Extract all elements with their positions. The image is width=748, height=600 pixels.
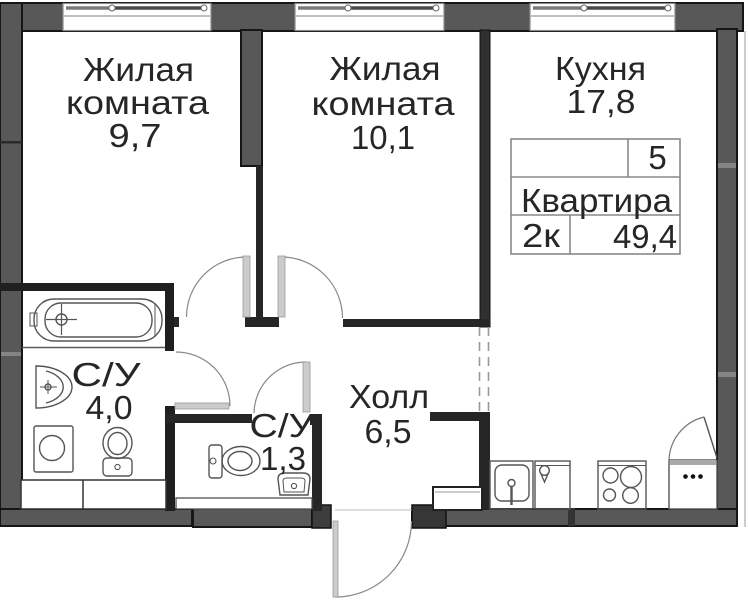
svg-text:Квартира: Квартира	[521, 182, 673, 219]
svg-text:Кухня: Кухня	[555, 50, 646, 87]
svg-text:17,8: 17,8	[567, 83, 636, 120]
svg-text:С/У: С/У	[250, 407, 315, 444]
svg-text:Жилая: Жилая	[330, 50, 441, 87]
svg-text:Холл: Холл	[349, 378, 429, 415]
svg-text:1,3: 1,3	[260, 440, 306, 477]
svg-text:комната: комната	[312, 85, 456, 122]
svg-text:6,5: 6,5	[365, 413, 412, 450]
svg-text:С/У: С/У	[72, 356, 142, 393]
svg-text:5: 5	[648, 139, 666, 176]
svg-text:комната: комната	[66, 84, 210, 121]
svg-text:9,7: 9,7	[109, 117, 162, 154]
svg-text:49,4: 49,4	[613, 218, 677, 255]
svg-text:10,1: 10,1	[351, 119, 415, 156]
svg-text:2к: 2к	[522, 217, 561, 254]
svg-text:Жилая: Жилая	[83, 51, 194, 88]
svg-text:4,0: 4,0	[86, 389, 133, 426]
